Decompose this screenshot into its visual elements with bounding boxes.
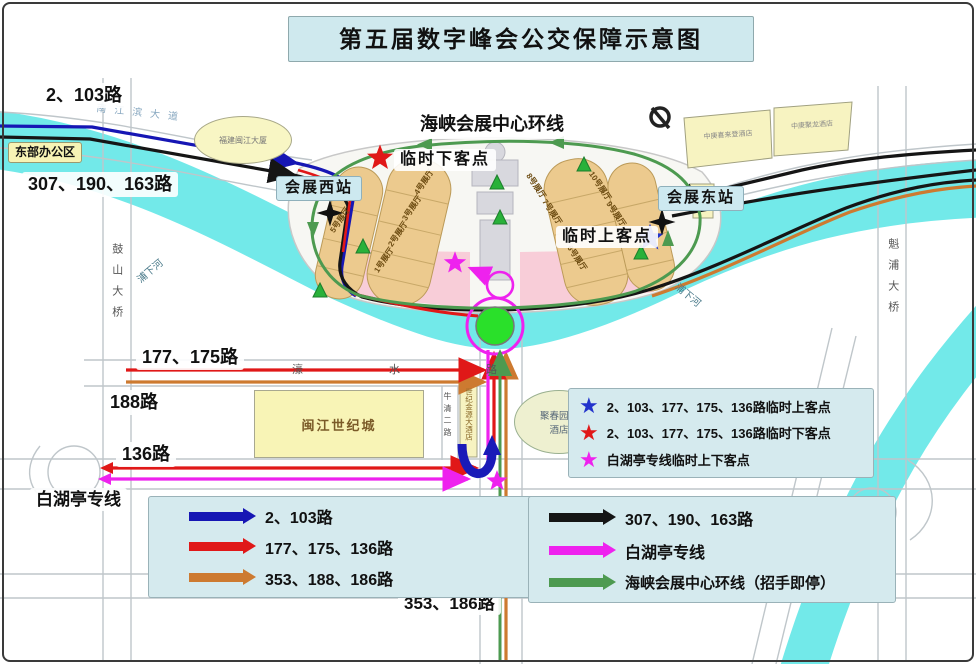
route-label-2-103: 2、103路	[40, 83, 128, 108]
route-label-136: 136路	[116, 442, 176, 467]
route-legend-label: 海峡会展中心环线（招手即停）	[625, 572, 835, 593]
route-legend-label: 177、175、136路	[265, 535, 393, 559]
star-legend-row: ★ 2、103、177、175、136路临时下客点	[579, 422, 863, 444]
century-golden-resources-hotel: 世纪金源大酒店	[462, 388, 476, 454]
star-legend-row: ★ 白湖亭专线临时上下客点	[579, 449, 863, 471]
road-haoshui: 濠水路	[292, 364, 583, 378]
route-legend-row: 353、188、186路	[189, 566, 525, 590]
blue-arrow-icon	[189, 512, 243, 521]
route-label-307-190-163: 307、190、163路	[22, 172, 178, 197]
green-arrow-icon	[549, 578, 603, 587]
route-legend-row: 白湖亭专线	[549, 539, 885, 563]
minjiang-century-city: 闽江世纪城	[254, 390, 424, 458]
route-label-177-175: 177、175路	[136, 345, 244, 370]
loop-line-label: 海峡会展中心环线	[408, 110, 576, 139]
road-gushan-bridge: 鼓山大桥	[109, 243, 123, 327]
route-legend-row: 2、103路	[189, 504, 525, 528]
baihuting-line-label: 白湖亭专线	[30, 488, 127, 511]
temp-pickup-label: 临时上客点	[556, 226, 658, 248]
route-legend-left: 2、103路 177、175、136路 353、188、186路	[148, 496, 536, 598]
east-station-label: 会展东站	[658, 186, 744, 211]
roundabout-circle	[476, 307, 514, 345]
route-legend-label: 307、190、163路	[625, 506, 753, 530]
route-legend-right: 307、190、163路 白湖亭专线 海峡会展中心环线（招手即停）	[528, 496, 896, 603]
route-legend-row: 307、190、163路	[549, 506, 885, 530]
blue-star-icon: ★	[579, 395, 599, 417]
route-label-188: 188路	[104, 390, 164, 415]
temp-dropoff-label: 临时下客点	[394, 149, 496, 171]
star-legend-label: 白湖亭专线临时上下客点	[607, 450, 750, 469]
star-legend: ★ 2、103、177、175、136路临时上客点 ★ 2、103、177、17…	[568, 388, 874, 478]
star-legend-row: ★ 2、103、177、175、136路临时上客点	[579, 395, 863, 417]
route-legend-label: 353、188、186路	[265, 566, 393, 590]
road-kuipu-bridge: 魁浦大桥	[885, 238, 899, 322]
magenta-arrow-icon	[549, 546, 603, 555]
route-legend-label: 白湖亭专线	[625, 539, 705, 563]
red-star-icon: ★	[579, 422, 599, 444]
transit-map-canvas: 第五届数字峰会公交保障示意图 2、103路 东部办公区 307、190、163路…	[0, 0, 976, 664]
road-niuqing-er: 牛清二路	[442, 392, 452, 440]
route-legend-label: 2、103路	[265, 504, 333, 528]
star-legend-label: 2、103、177、175、136路临时下客点	[607, 423, 831, 442]
page-title: 第五届数字峰会公交保障示意图	[288, 16, 754, 62]
magenta-star-icon: ★	[579, 449, 599, 471]
no-entry-icon	[651, 108, 669, 128]
east-office-area: 东部办公区	[8, 142, 82, 163]
star-legend-label: 2、103、177、175、136路临时上客点	[607, 397, 831, 416]
west-station-label: 会展西站	[276, 176, 362, 201]
orange-arrow-icon	[189, 573, 243, 582]
fujian-minjiang-tower: 福建闽江大厦	[194, 116, 292, 164]
black-arrow-icon	[549, 513, 603, 522]
route-legend-row: 海峡会展中心环线（招手即停）	[549, 572, 885, 593]
route-legend-row: 177、175、136路	[189, 535, 525, 559]
red-arrow-icon	[189, 542, 243, 551]
